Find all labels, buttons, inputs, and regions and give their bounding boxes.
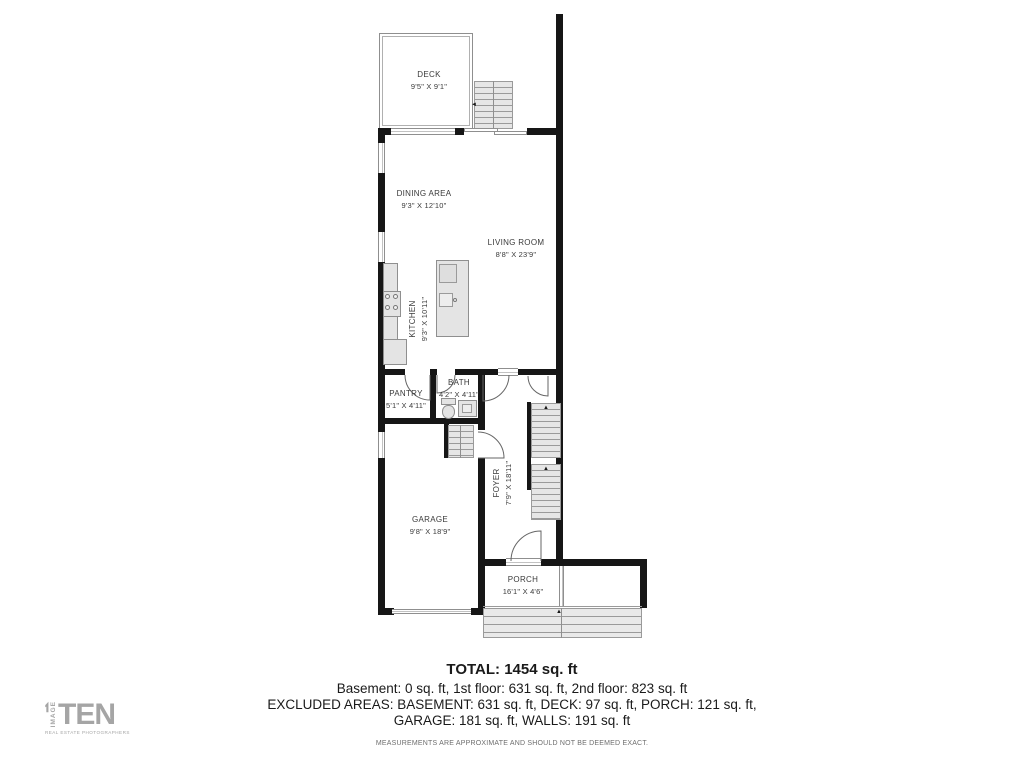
porch-door-arc	[511, 531, 541, 561]
room-label-living: LIVING ROOM 8'8" X 23'9"	[488, 237, 545, 261]
room-name: GARAGE	[410, 514, 451, 526]
pantry-door-opening	[405, 369, 431, 375]
floor-areas-text: Basement: 0 sq. ft, 1st floor: 631 sq. f…	[0, 681, 1024, 697]
wall-porch-right	[640, 559, 647, 608]
left-arrow-icon: ◄	[471, 102, 477, 108]
foyer-stairs-upper	[531, 403, 561, 458]
up-arrow-icon: ▲	[556, 609, 562, 615]
stairs-door-opening	[478, 430, 485, 458]
room-name: FOYER	[491, 461, 503, 505]
excluded-areas-text-1: EXCLUDED AREAS: BASEMENT: 631 sq. ft, DE…	[0, 697, 1024, 713]
room-label-deck: DECK 9'5" X 9'1"	[411, 69, 447, 93]
island-counter-square	[439, 264, 457, 283]
room-dims: 9'5" X 9'1"	[411, 81, 447, 93]
wall-porch-top	[478, 559, 647, 566]
floor-plan-page: ◄ ▲ ▲ ▲	[0, 0, 1024, 768]
garage-door	[392, 609, 473, 614]
logo-tagline: REAL ESTATE PHOTOGRAPHERS	[45, 730, 115, 735]
foyer-entry-opening	[498, 368, 518, 376]
imageten-logo: IMAGE TEN REAL ESTATE PHOTOGRAPHERS	[45, 687, 115, 739]
logo-vertical-text: IMAGE	[51, 701, 58, 727]
logo-numeral-one-icon	[45, 687, 50, 727]
wall-midrow-bottom	[378, 418, 485, 424]
disclaimer-text: MEASUREMENTS ARE APPROXIMATE AND SHOULD …	[0, 740, 1024, 747]
stove-burner	[393, 305, 398, 310]
refrigerator	[383, 339, 407, 365]
room-label-pantry: PANTRY 5'1" X 4'11"	[386, 388, 426, 412]
window-top	[391, 128, 455, 135]
area-summary: TOTAL: 1454 sq. ft Basement: 0 sq. ft, 1…	[0, 661, 1024, 747]
porch-divider	[559, 566, 564, 606]
porch-bottom-edge	[483, 606, 642, 607]
deck-stairs-divider	[493, 81, 494, 129]
room-label-porch: PORCH 16'1" X 4'6"	[503, 574, 544, 598]
room-name: DECK	[411, 69, 447, 81]
sliding-door-panel-left	[464, 128, 498, 132]
sliding-door-panel-right	[494, 131, 527, 135]
up-arrow-icon: ▲	[543, 405, 549, 411]
room-label-foyer: FOYER 7'9" X 18'11"	[491, 461, 515, 505]
up-arrow-icon: ▲	[543, 466, 549, 472]
room-name: PANTRY	[386, 388, 426, 400]
bath-door-opening	[437, 369, 455, 375]
room-dims: 8'8" X 23'9"	[488, 249, 545, 261]
room-name: BATH	[439, 377, 479, 389]
stove-burner	[385, 305, 390, 310]
room-dims: 4'2" X 4'11"	[439, 389, 479, 401]
room-name: DINING AREA	[397, 188, 452, 200]
toilet-bowl	[442, 405, 455, 419]
room-label-bath: BATH 4'2" X 4'11"	[439, 377, 479, 401]
stove-burner	[385, 294, 390, 299]
window-dining-lower	[378, 232, 385, 262]
room-label-kitchen: KITCHEN 9'3" X 10'11"	[407, 297, 431, 341]
room-dims: 9'8" X 18'9"	[410, 526, 451, 538]
mid-stairs	[448, 425, 474, 458]
room-label-dining: DINING AREA 9'3" X 12'10"	[397, 188, 452, 212]
foyer-stairs-lower	[531, 464, 561, 520]
window-garage	[378, 432, 385, 458]
logo-main-text: TEN	[58, 703, 115, 727]
room-dims: 16'1" X 4'6"	[503, 586, 544, 598]
wall-top-c	[527, 128, 563, 135]
room-name: KITCHEN	[407, 297, 419, 341]
mid-stairs-divider	[460, 425, 461, 458]
room-name: PORCH	[503, 574, 544, 586]
porch-steps	[483, 608, 642, 638]
excluded-areas-text-2: GARAGE: 181 sq. ft, WALLS: 191 sq. ft	[0, 713, 1024, 729]
foyer-west-door-arc	[483, 375, 509, 401]
room-dims: 9'3" X 10'11"	[419, 297, 431, 341]
room-label-garage: GARAGE 9'8" X 18'9"	[410, 514, 451, 538]
room-dims: 5'1" X 4'11"	[386, 400, 426, 412]
island-sink	[439, 293, 453, 307]
wall-foyer-left	[478, 369, 485, 615]
island-faucet	[453, 298, 457, 302]
bath-sink	[462, 404, 472, 413]
total-area-text: TOTAL: 1454 sq. ft	[0, 661, 1024, 678]
porch-door-threshold	[506, 558, 541, 566]
window-dining-upper	[378, 143, 385, 173]
room-name: LIVING ROOM	[488, 237, 545, 249]
wall-top-b	[455, 128, 464, 135]
room-dims: 7'9" X 18'11"	[503, 461, 515, 505]
wall-pantry-bath-divider	[430, 369, 436, 424]
stove-burner	[393, 294, 398, 299]
room-dims: 9'3" X 12'10"	[397, 200, 452, 212]
foyer-east-door-arc	[528, 376, 548, 396]
